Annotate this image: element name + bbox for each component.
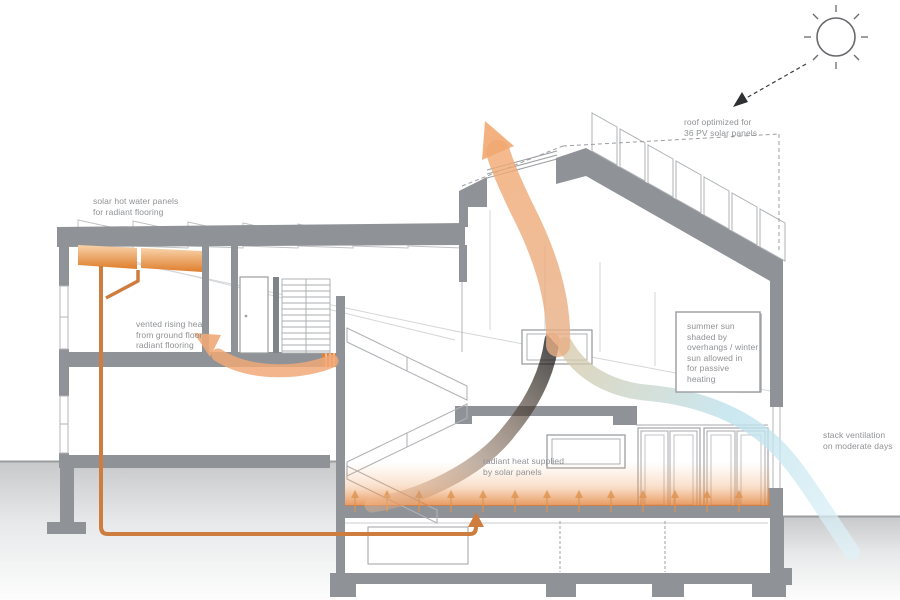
label-solar-hot-water: solar hot water panels for radiant floor… — [93, 196, 178, 217]
section-drawing — [0, 0, 900, 600]
column — [60, 462, 74, 522]
sun-ray-arrow — [733, 64, 806, 107]
t-footing — [47, 522, 86, 534]
stair-ladder — [282, 279, 330, 353]
hot-water-collectors — [78, 245, 202, 272]
interior-door — [240, 277, 268, 353]
label-radiant-heat: radiant heat supplied by solar panels — [483, 456, 564, 477]
heat-rise-arrow — [482, 121, 558, 345]
stair-wall — [273, 277, 279, 353]
label-summer-sun: summer sun shaded by overhangs / winter … — [687, 321, 758, 384]
label-stack-vent: stack ventilation on moderate days — [823, 430, 893, 451]
passive-solar-section-diagram: solar hot water panels for radiant floor… — [0, 0, 900, 600]
sun-icon — [804, 5, 868, 69]
mid-floor-slab — [455, 406, 637, 425]
flat-roof — [57, 223, 465, 247]
crawl-space — [345, 521, 768, 572]
label-pv-roof: roof optimized for 36 PV solar panels — [684, 117, 757, 138]
label-vented-heat: vented rising heat from ground floor rad… — [136, 319, 205, 351]
strip-footing — [330, 573, 788, 597]
core-wall — [336, 296, 345, 573]
